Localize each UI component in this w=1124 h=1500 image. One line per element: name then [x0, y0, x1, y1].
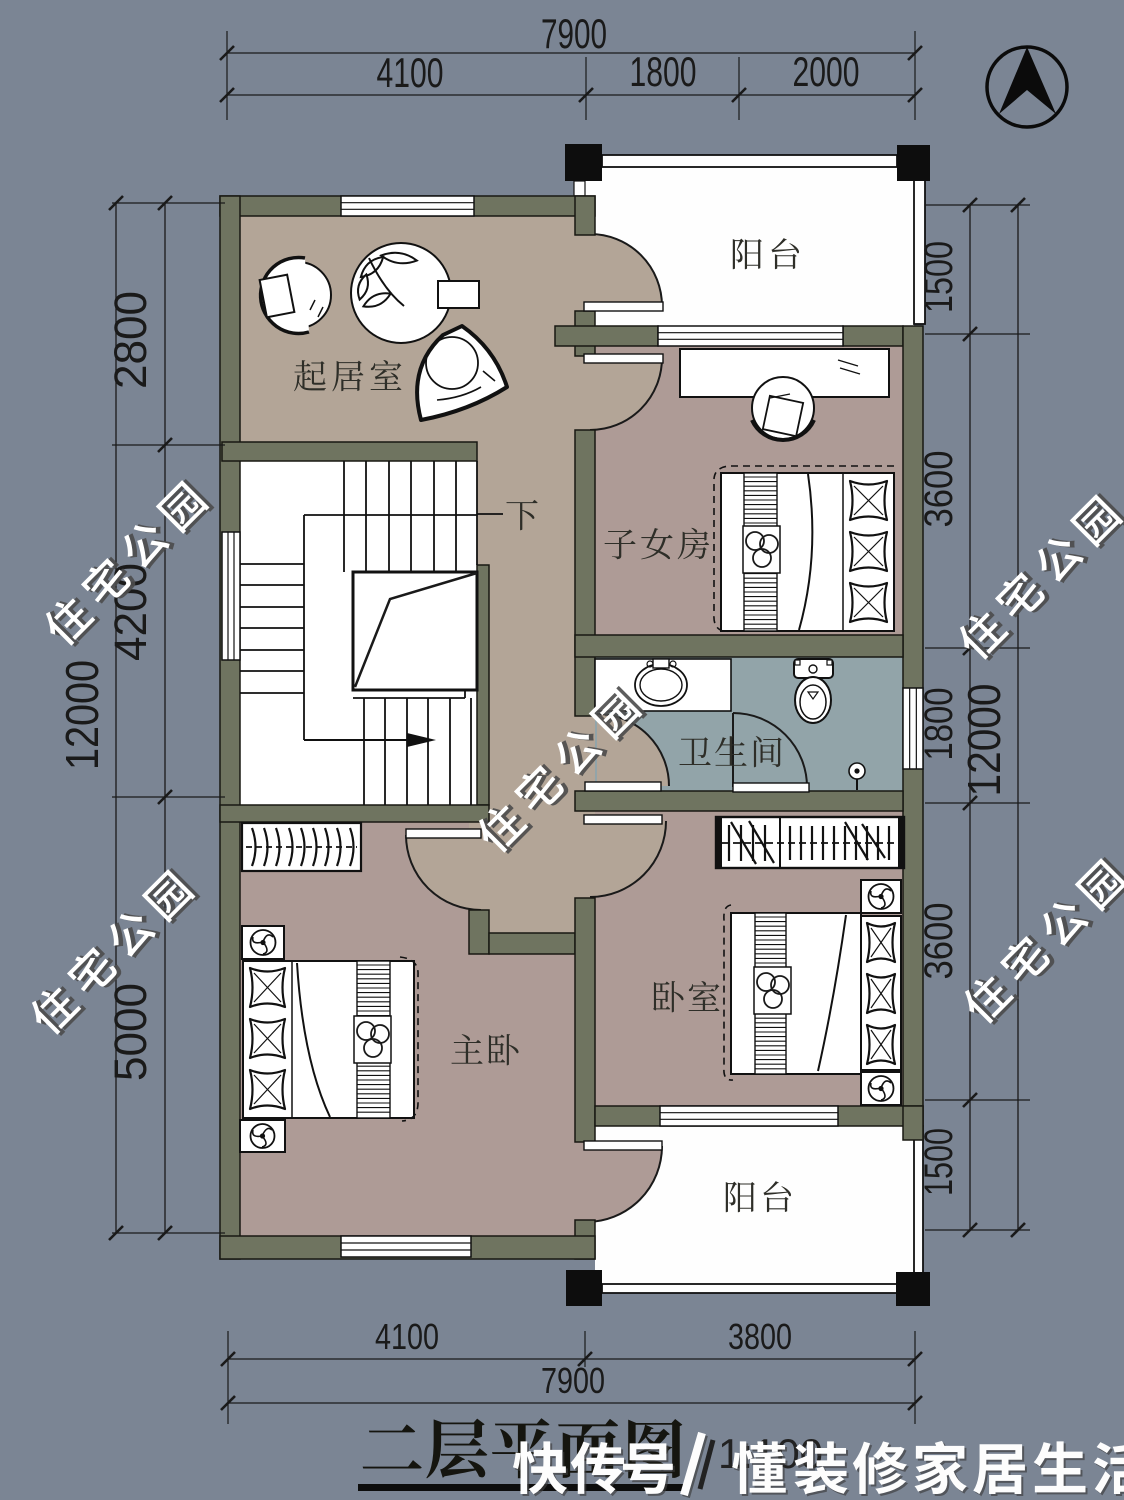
svg-text:1800: 1800 — [630, 48, 697, 95]
svg-text:2000: 2000 — [793, 48, 860, 95]
svg-text:12000: 12000 — [56, 660, 108, 770]
svg-text:2800: 2800 — [105, 291, 156, 389]
svg-text:7900: 7900 — [541, 10, 607, 57]
svg-text:1500: 1500 — [917, 1128, 961, 1196]
svg-text:5000: 5000 — [105, 983, 156, 1081]
svg-text:12000: 12000 — [958, 684, 1010, 797]
svg-text:4100: 4100 — [375, 1316, 439, 1357]
svg-text:3600: 3600 — [917, 451, 961, 528]
svg-text:4100: 4100 — [377, 49, 444, 96]
svg-text:7900: 7900 — [541, 1360, 605, 1401]
svg-text:3600: 3600 — [917, 903, 961, 980]
svg-text:1800: 1800 — [917, 688, 961, 761]
svg-text:1500: 1500 — [917, 241, 961, 313]
svg-text:3800: 3800 — [728, 1316, 792, 1357]
